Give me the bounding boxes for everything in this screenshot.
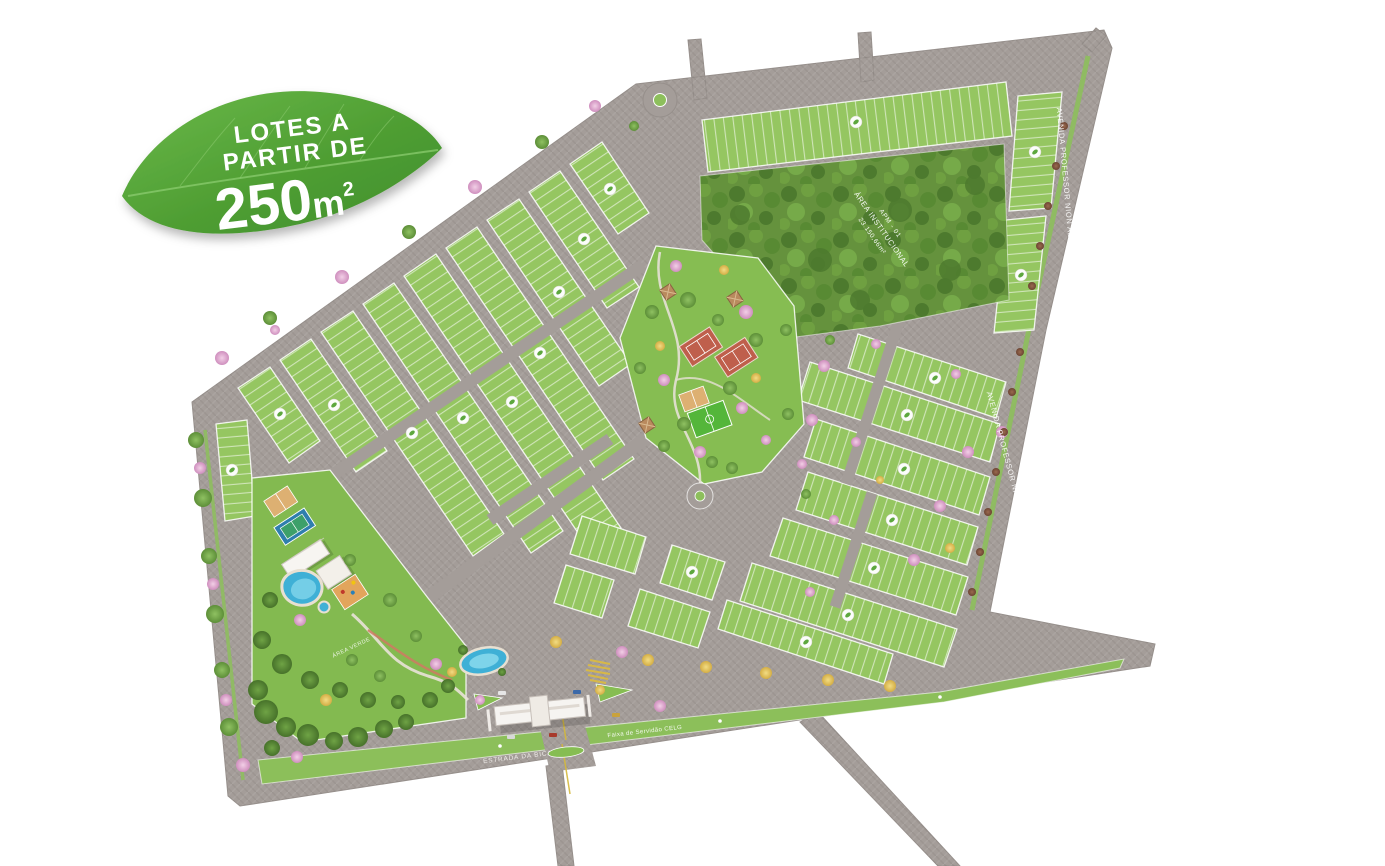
top-roundabout	[643, 83, 677, 117]
mini-roundabout	[687, 483, 713, 509]
masterplan-page: APM - 01 ÁREA INSTITUCIONAL 23.150,66m²	[0, 0, 1385, 866]
masterplan-map: APM - 01 ÁREA INSTITUCIONAL 23.150,66m²	[0, 0, 1385, 866]
kids-pool	[319, 602, 330, 613]
